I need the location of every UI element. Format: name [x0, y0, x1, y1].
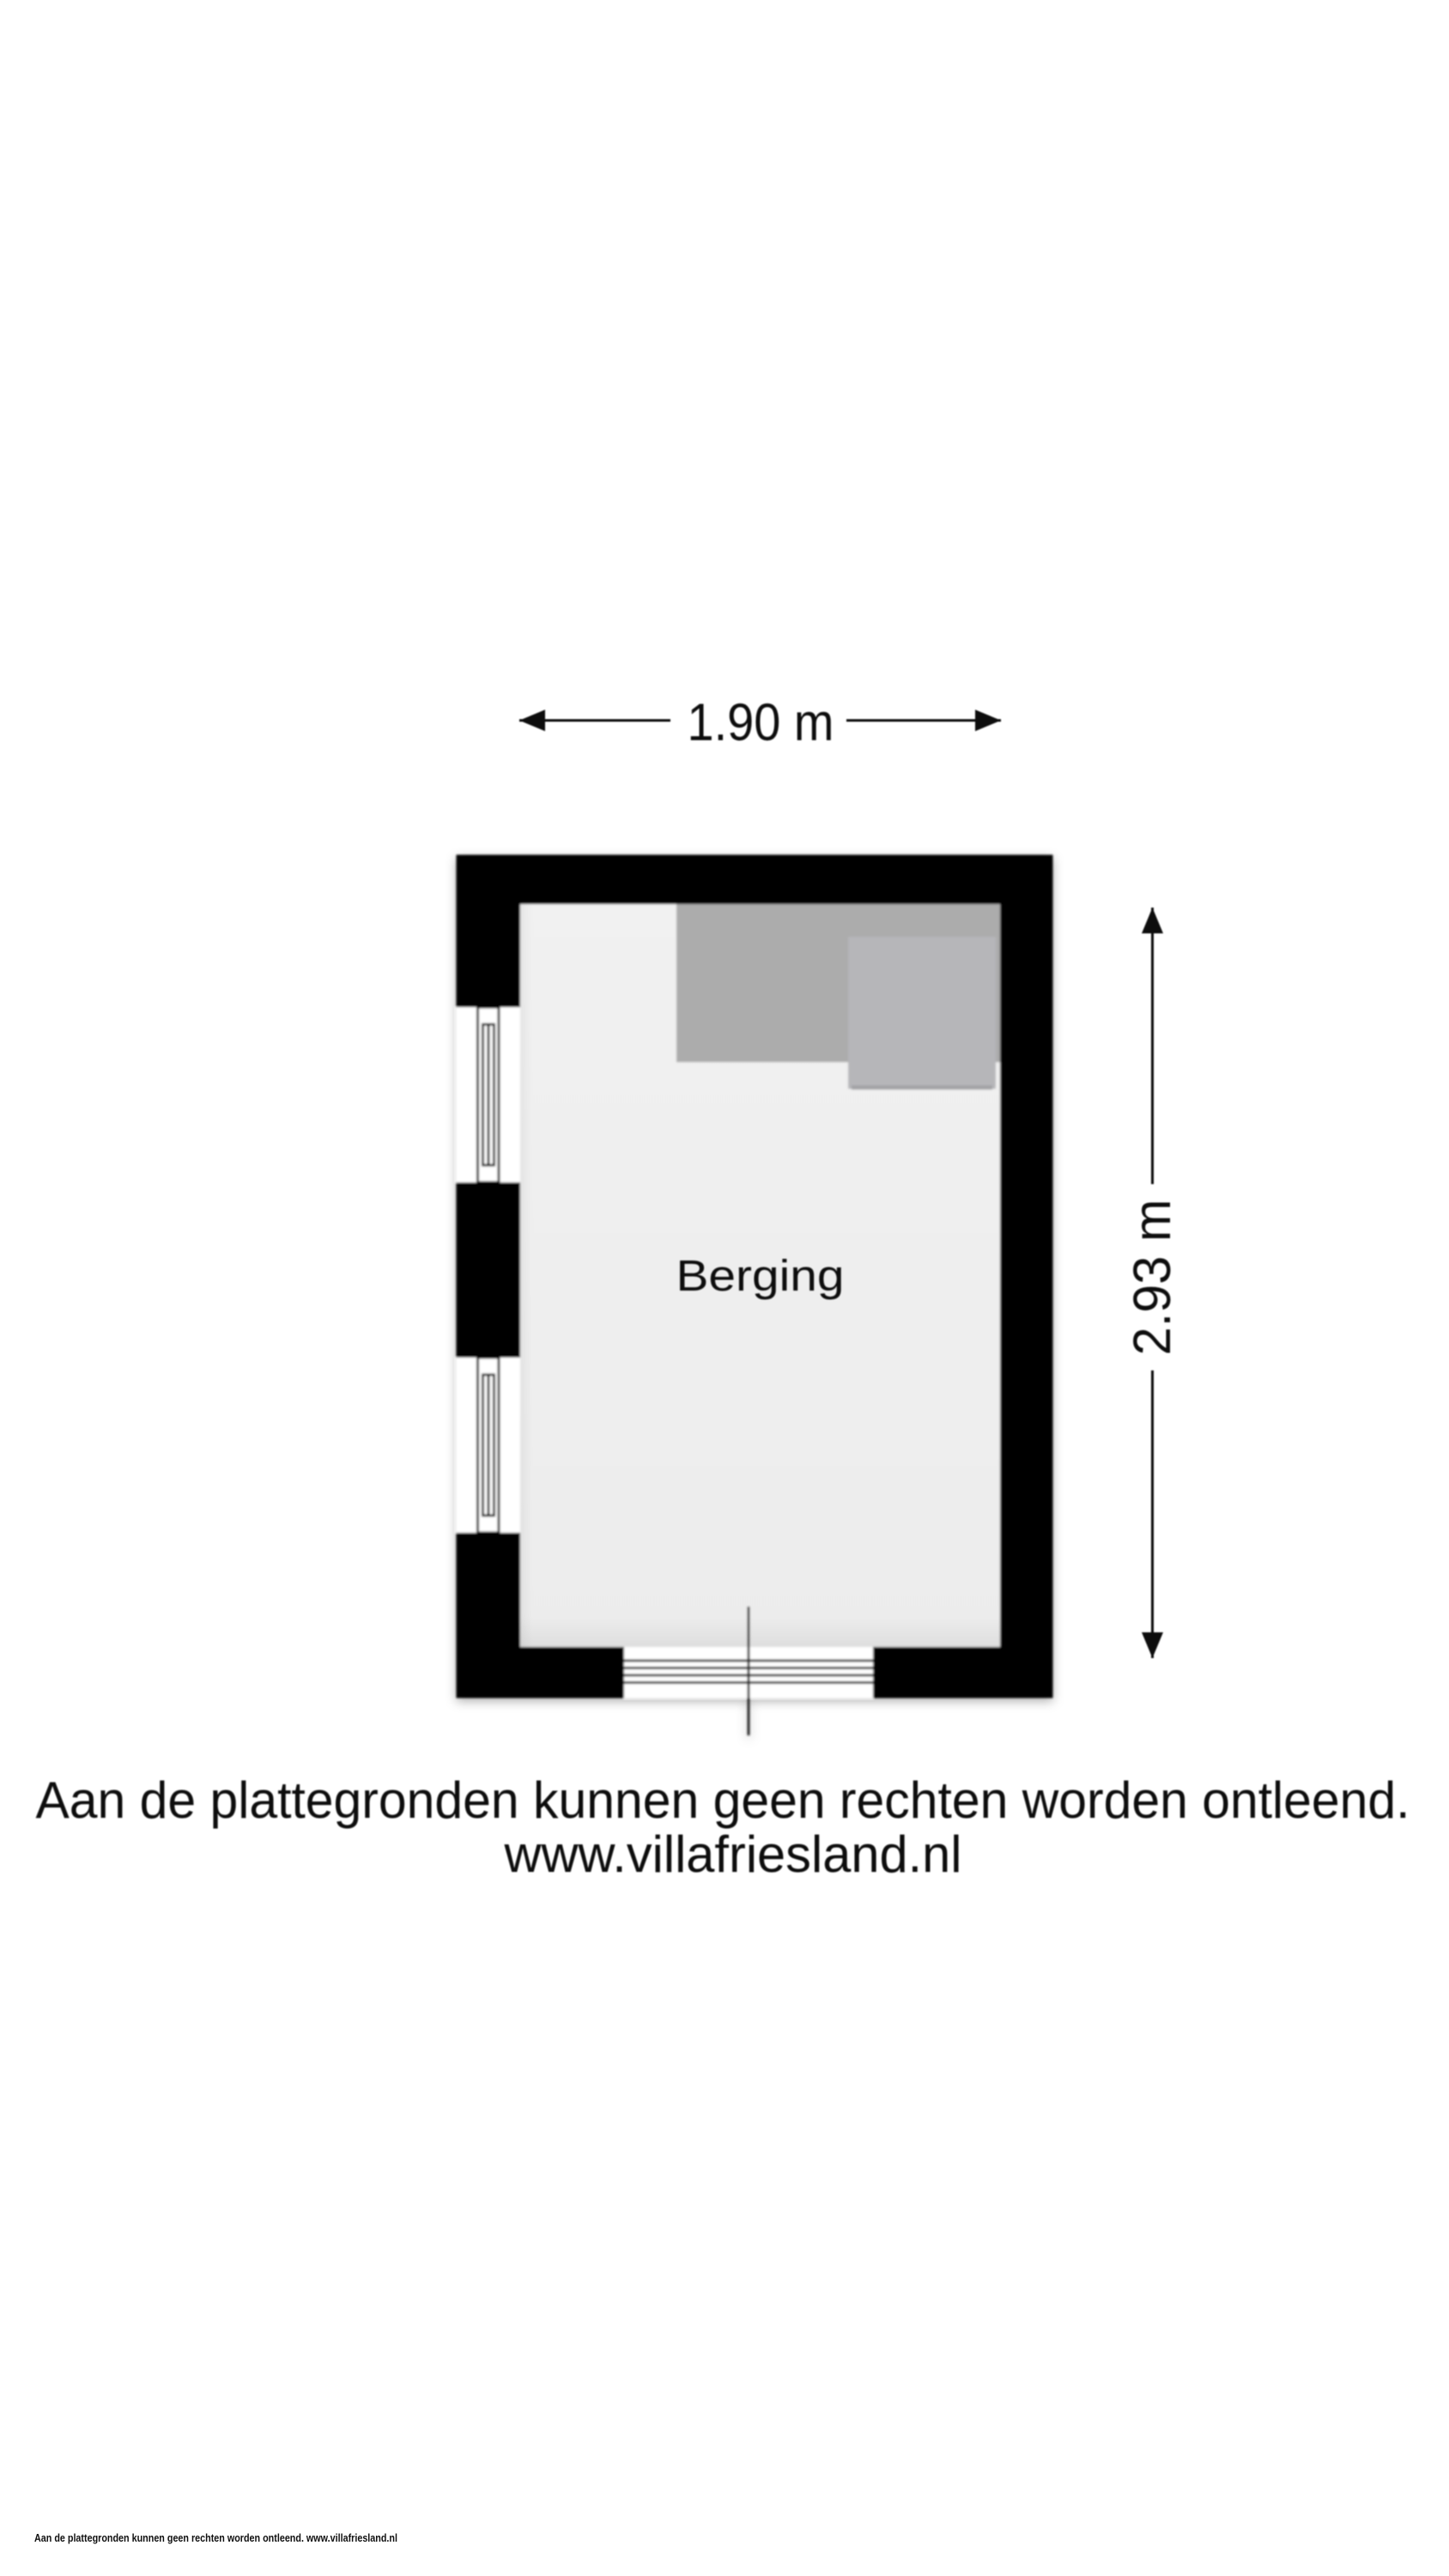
svg-text:www.villafriesland.nl: www.villafriesland.nl	[504, 1826, 962, 1883]
svg-text:2.93 m: 2.93 m	[1123, 1200, 1181, 1356]
svg-text:Aan de plattegronden kunnen ge: Aan de plattegronden kunnen geen rechten…	[36, 1771, 1410, 1829]
svg-text:1.90 m: 1.90 m	[688, 693, 834, 751]
svg-text:Berging: Berging	[676, 1251, 845, 1300]
svg-text:Aan de plattegronden kunnen ge: Aan de plattegronden kunnen geen rechten…	[34, 2531, 397, 2544]
